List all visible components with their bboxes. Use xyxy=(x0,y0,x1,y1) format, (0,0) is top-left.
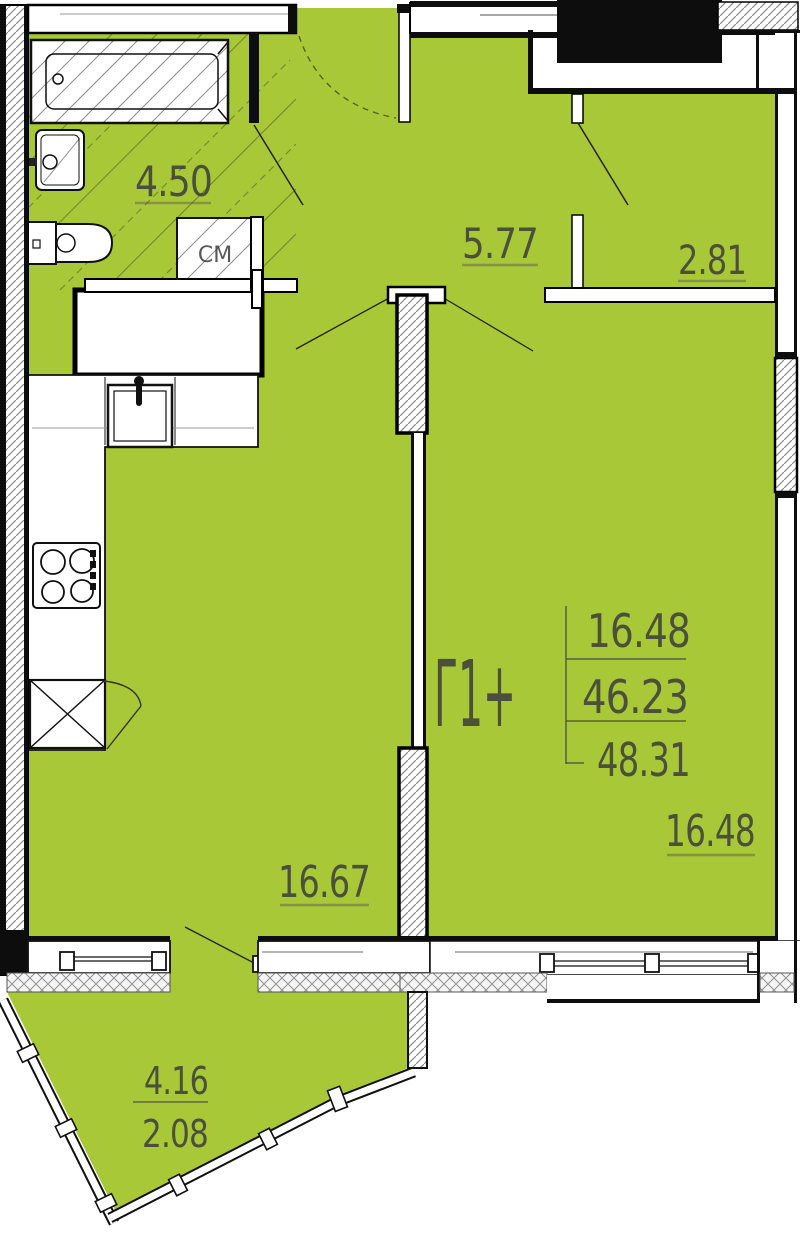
table-living-area: 16.48 xyxy=(587,604,690,658)
balcony-area-full-label: 4.16 xyxy=(144,1059,208,1103)
closet-area-label: 2.81 xyxy=(678,238,746,284)
shaft-black-block xyxy=(557,0,722,63)
table-area-no-balcony: 46.23 xyxy=(582,670,688,724)
sink-tap xyxy=(28,158,37,166)
hall-area-label: 5.77 xyxy=(462,219,538,268)
washing-machine-label: СМ xyxy=(198,243,232,268)
closet-south-wall xyxy=(545,288,775,302)
living-area-label: 16.67 xyxy=(278,857,370,908)
corridor-strip xyxy=(410,1,563,38)
bathroom-area-label: 4.50 xyxy=(135,157,212,206)
bathroom-sink xyxy=(28,130,84,190)
stove xyxy=(33,543,100,608)
toilet xyxy=(28,222,112,264)
bedroom-area-label: 16.48 xyxy=(665,806,755,857)
kitchen-sink xyxy=(108,376,172,447)
kitchen-faucet xyxy=(136,384,142,406)
balcony-area-coeff-label: 2.08 xyxy=(142,1112,208,1156)
bathroom-east-wall xyxy=(249,33,259,123)
bathtub xyxy=(31,40,228,123)
table-total-area: 48.31 xyxy=(597,733,690,787)
central-column-top xyxy=(397,295,427,433)
kitchen-block xyxy=(75,290,262,375)
window-pier xyxy=(258,941,430,973)
balcony-side-wall xyxy=(408,992,427,1068)
floor-plan-page: СМ xyxy=(0,0,800,1238)
exterior-wall-left xyxy=(0,5,28,975)
floor-plan-drawing: СМ xyxy=(0,0,800,1238)
right-wall-column xyxy=(775,358,797,492)
exterior-wall-right xyxy=(775,33,800,945)
apartment-type-label: Г1+ xyxy=(434,641,516,748)
entrance-door-leaf xyxy=(399,6,410,122)
